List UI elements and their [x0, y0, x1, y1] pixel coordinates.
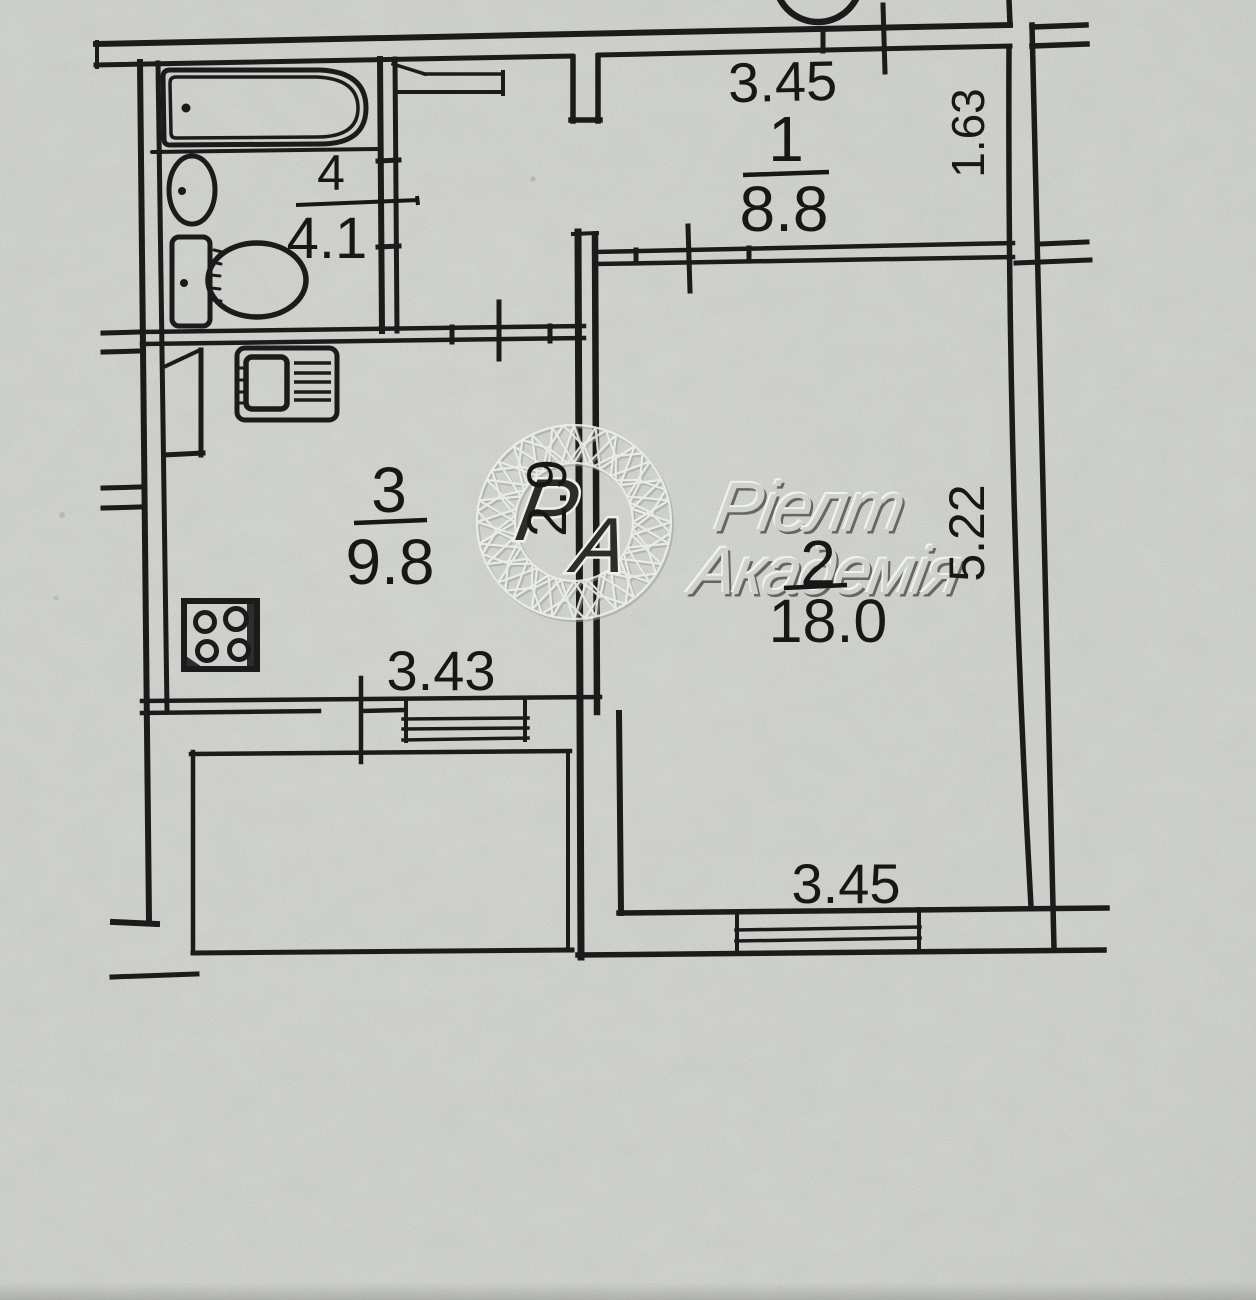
svg-text:3: 3	[371, 454, 407, 526]
svg-text:4: 4	[317, 145, 345, 201]
svg-text:1: 1	[768, 103, 804, 175]
svg-text:1.63: 1.63	[942, 88, 994, 178]
svg-text:18.0: 18.0	[769, 587, 888, 655]
svg-text:3.45: 3.45	[792, 852, 901, 915]
svg-text:9.8: 9.8	[346, 526, 435, 598]
svg-text:4.1: 4.1	[287, 206, 368, 271]
svg-text:2.9: 2.9	[515, 459, 578, 537]
svg-text:5.22: 5.22	[939, 484, 995, 581]
svg-text:3.43: 3.43	[387, 639, 496, 702]
svg-text:8.8: 8.8	[740, 173, 829, 245]
